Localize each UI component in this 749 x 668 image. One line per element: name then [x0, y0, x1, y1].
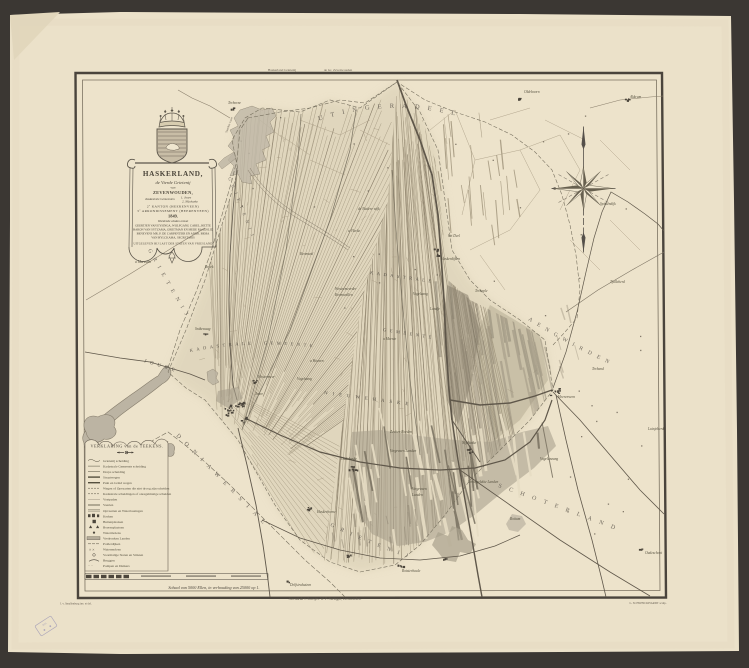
- svg-text:Vogelzang: Vogelzang: [413, 292, 428, 296]
- svg-text:Polderdijken: Polderdijken: [103, 542, 121, 546]
- svg-text:Wordende alsdan omvat: Wordende alsdan omvat: [158, 219, 189, 223]
- svg-text:Oldeboorn: Oldeboorn: [524, 90, 540, 94]
- svg-text:Terkaple: Terkaple: [475, 289, 488, 293]
- svg-text:Watermolens: Watermolens: [103, 531, 121, 535]
- svg-text:J. v. Smallenburg inv. et del.: J. v. Smallenburg inv. et del.: [60, 603, 92, 606]
- svg-text:Opvaarten en Waterlossingen: Opvaarten en Waterlossingen: [103, 509, 143, 513]
- svg-text:UITGEGEVEN BIJ LAST DER STATEN: UITGEGEVEN BIJ LAST DER STATEN VAN VRIES…: [134, 243, 213, 246]
- svg-text:Rotsterhaule: Rotsterhaule: [401, 569, 421, 573]
- svg-text:Vergraven: Vergraven: [412, 487, 427, 491]
- svg-text:Puin en Grind wegen: Puin en Grind wegen: [103, 481, 132, 485]
- svg-text:Westermeerder: Westermeerder: [335, 287, 357, 291]
- svg-text:Straatwegen: Straatwegen: [103, 475, 120, 479]
- svg-text:Snikzwaag: Snikzwaag: [195, 327, 211, 331]
- svg-text:Wegen of Opvaarten die niet dr: Wegen of Opvaarten die niet droog zijn s…: [103, 487, 170, 491]
- svg-text:2. Nijehaske: 2. Nijehaske: [182, 200, 198, 204]
- svg-text:Vaarten: Vaarten: [103, 503, 114, 507]
- svg-text:ZEVENWOUDEN,: ZEVENWOUDEN,: [153, 190, 193, 195]
- svg-text:Voetpaden: Voetpaden: [103, 498, 118, 502]
- svg-text:Heerenveen: Heerenveen: [557, 395, 575, 399]
- svg-text:Rottum: Rottum: [509, 517, 521, 521]
- svg-text:Landen: Landen: [411, 493, 423, 497]
- svg-text:a Meente: a Meente: [383, 337, 397, 341]
- svg-text:Delfstrahuizen: Delfstrahuizen: [289, 583, 311, 587]
- svg-text:VERKLARING van de TEEKENS.: VERKLARING van de TEEKENS.: [91, 444, 164, 449]
- svg-text:de Vierde Grietenij: de Vierde Grietenij: [156, 180, 192, 185]
- svg-text:het Deel: het Deel: [448, 234, 460, 238]
- svg-text:Luinjeberd: Luinjeberd: [647, 427, 664, 431]
- svg-text:Akkrum: Akkrum: [629, 95, 642, 99]
- svg-text:Broek: Broek: [205, 265, 214, 269]
- svg-text:Boerenplaatsen: Boerenplaatsen: [103, 525, 124, 529]
- svg-text:Voormalige Staten en Stinzen: Voormalige Staten en Stinzen: [103, 553, 143, 557]
- svg-text:Haskerhorne: Haskerhorne: [316, 510, 336, 514]
- svg-text:Grietenij scheiding: Grietenij scheiding: [103, 459, 129, 463]
- svg-text:Vergraven Landen: Vergraven Landen: [390, 449, 417, 453]
- svg-text:4e Gr. Zevenwouden: 4e Gr. Zevenwouden: [324, 68, 353, 72]
- svg-text:2º KANTON (HEERENVEEN): 2º KANTON (HEERENVEEN): [147, 205, 199, 209]
- svg-text:Haskerdijken: Haskerdijken: [440, 257, 460, 261]
- svg-text:Dorps scheiding: Dorps scheiding: [103, 470, 125, 474]
- svg-text:Joure: Joure: [255, 392, 263, 396]
- svg-text:Oudeschoot: Oudeschoot: [645, 551, 663, 555]
- svg-text:Kadastrale Gemeente scheiding: Kadastrale Gemeente scheiding: [103, 464, 146, 468]
- svg-text:de Nadere wijk: de Nadere wijk: [358, 207, 380, 211]
- svg-text:Bruggen: Bruggen: [103, 559, 115, 563]
- svg-text:van: van: [171, 186, 176, 190]
- svg-text:Tjalleberd: Tjalleberd: [610, 280, 625, 284]
- svg-text:Haskerland Grietenij: Haskerland Grietenij: [268, 68, 296, 72]
- svg-text:Vogelzang: Vogelzang: [297, 377, 312, 381]
- svg-text:a Hooren: a Hooren: [310, 359, 324, 363]
- svg-text:Zestien Roeden: Zestien Roeden: [390, 430, 412, 434]
- svg-text:1849.: 1849.: [168, 214, 178, 219]
- svg-text:Kadastrale Gemeenten: Kadastrale Gemeenten: [144, 197, 175, 201]
- svg-text:Landje: Landje: [429, 307, 440, 311]
- svg-text:Kerken: Kerken: [103, 514, 113, 518]
- svg-text:Verongelukte Landen: Verongelukte Landen: [468, 480, 499, 484]
- svg-text:HASKERLAND,: HASKERLAND,: [143, 170, 203, 178]
- svg-text:Spitsendijk: Spitsendijk: [600, 202, 616, 206]
- svg-text:Terband: Terband: [592, 367, 604, 371]
- svg-text:3º ARRONDISSEMENT (HEERENVEEN): 3º ARRONDISSEMENT (HEERENVEEN): [137, 209, 209, 213]
- svg-text:Pompen en Duikers: Pompen en Duikers: [103, 564, 130, 568]
- svg-text:Kadastrale scheidingen of onre: Kadastrale scheidingen of onregelmatige …: [103, 492, 171, 496]
- svg-text:Verdronken Landen: Verdronken Landen: [103, 537, 130, 541]
- svg-text:·· ··: ·· ··: [88, 564, 93, 568]
- svg-text:Buitenplaatsen: Buitenplaatsen: [103, 520, 123, 524]
- svg-text:L. SCHWEICKHARDT sculp.: L. SCHWEICKHARDT sculp.: [629, 601, 666, 605]
- svg-text:Kromwal: Kromwal: [299, 252, 313, 256]
- svg-text:Westermeer: Westermeer: [258, 375, 275, 379]
- svg-text:Terhorne: Terhorne: [228, 101, 241, 105]
- svg-text:Nijehaske: Nijehaske: [461, 441, 477, 445]
- svg-text:Oudehaske: Oudehaske: [341, 457, 357, 461]
- svg-text:Vogelenzang: Vogelenzang: [540, 457, 558, 461]
- svg-text:× ×: × ×: [89, 547, 95, 552]
- svg-text:Watermolens: Watermolens: [103, 548, 121, 552]
- svg-text:Kromwallen: Kromwallen: [334, 293, 353, 297]
- svg-text:a Vlecke: a Vlecke: [348, 229, 361, 233]
